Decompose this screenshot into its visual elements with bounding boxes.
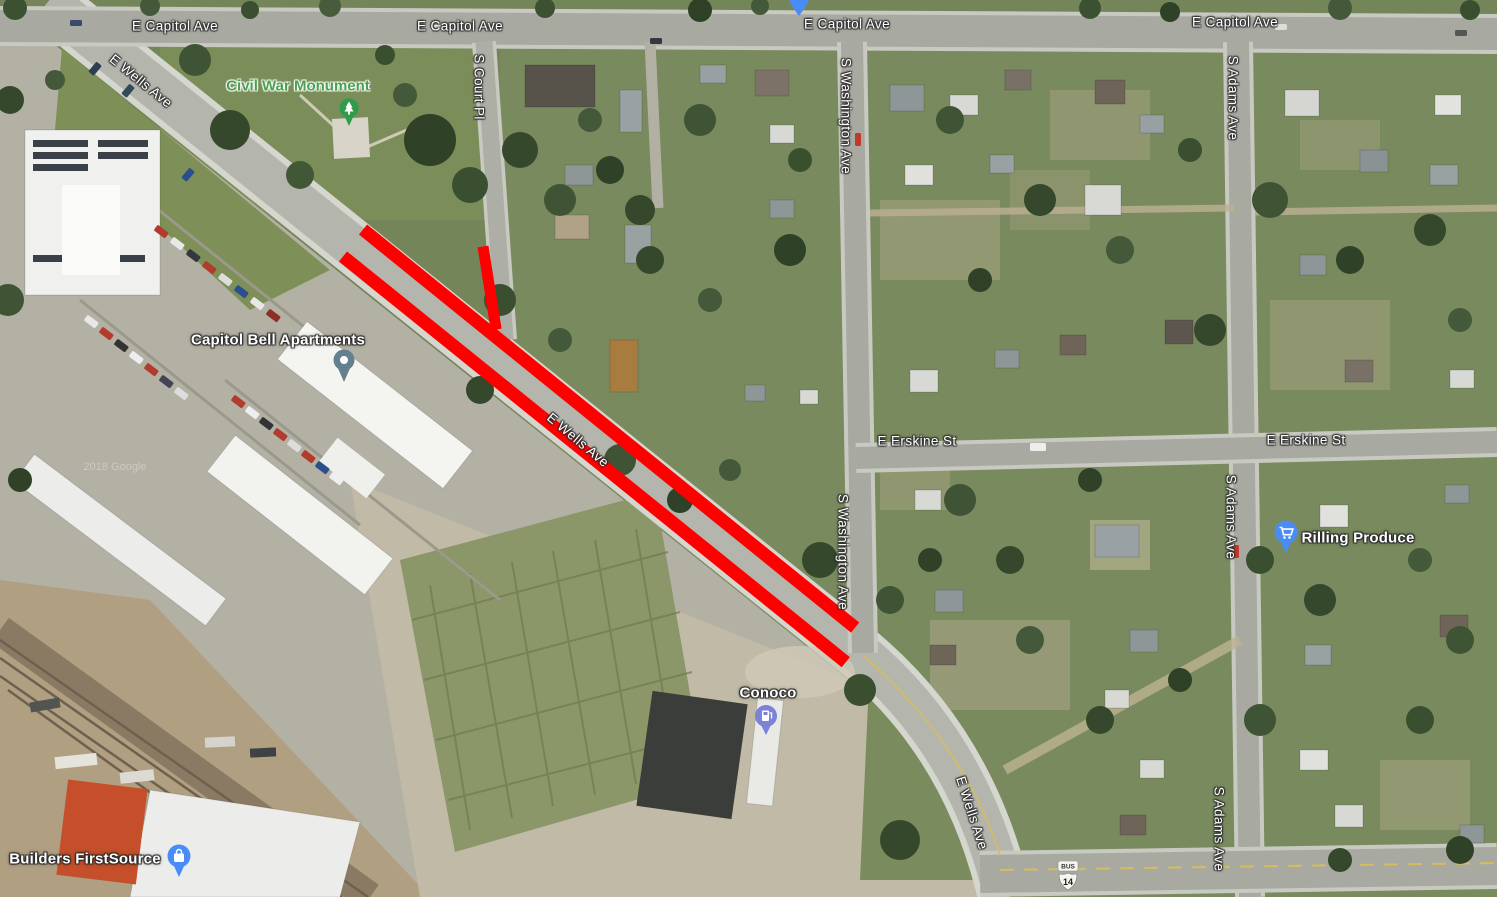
- satellite-imagery: [0, 0, 1497, 897]
- pin-hole-icon: [340, 356, 348, 364]
- builders-firstsource-bag-pin[interactable]: [166, 843, 192, 879]
- capitol-bell-apartments-pin[interactable]: [333, 348, 355, 384]
- transit-stop-pin[interactable]: [786, 0, 812, 17]
- conoco-gas-pin[interactable]: [753, 703, 779, 737]
- shield-banner: BUS: [1061, 864, 1075, 871]
- rilling-produce-cart-pin[interactable]: [1273, 519, 1299, 555]
- satellite-map-canvas[interactable]: E Capitol Ave E Capitol Ave E Capitol Av…: [0, 0, 1497, 897]
- shield-route-number: 14: [1063, 877, 1073, 887]
- civil-war-monument-pin[interactable]: [339, 98, 359, 128]
- us-route-14-bus-shield: BUS 14: [1056, 861, 1080, 895]
